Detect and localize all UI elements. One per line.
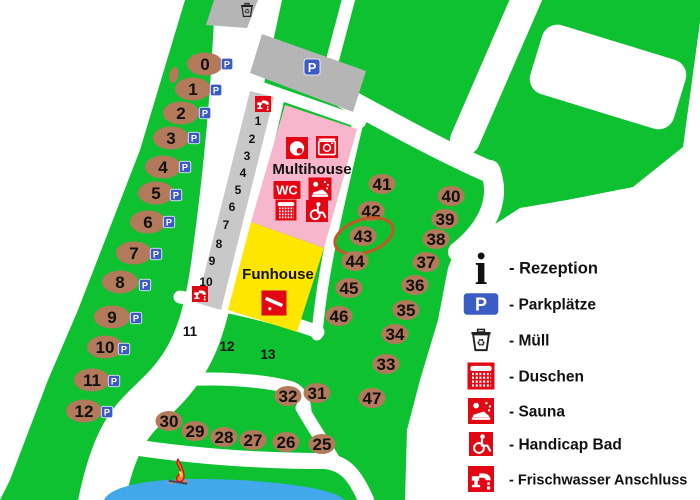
svg-text:47: 47 <box>363 389 382 408</box>
svg-text:1: 1 <box>188 80 197 99</box>
shower-icon <box>468 363 495 390</box>
svg-text:40: 40 <box>442 187 461 206</box>
parking-icon: P <box>221 58 233 70</box>
pitch-25: 25 <box>309 434 336 454</box>
pitch-36: 36 <box>402 275 429 295</box>
trash-icon <box>241 3 253 16</box>
svg-text:0: 0 <box>200 55 209 74</box>
svg-text:33: 33 <box>377 355 396 374</box>
lane-number-6: 6 <box>229 200 236 214</box>
wc-icon: WC <box>274 181 301 199</box>
lane-number-7: 7 <box>223 218 230 232</box>
sauna-icon <box>468 398 494 424</box>
svg-text:26: 26 <box>277 433 296 452</box>
funhouse-label: Funhouse <box>242 266 314 283</box>
svg-text:41: 41 <box>373 175 392 194</box>
svg-text:P: P <box>166 217 172 227</box>
svg-text:37: 37 <box>417 253 436 272</box>
pitch-30: 30 <box>156 411 183 431</box>
parking-icon: P <box>150 248 162 260</box>
pitch-37: 37 <box>413 252 440 272</box>
legend-label: - Parkplätze <box>509 297 596 314</box>
handicap-icon <box>469 432 493 456</box>
svg-text:29: 29 <box>186 422 205 441</box>
svg-text:32: 32 <box>279 387 298 406</box>
shower-icon <box>276 200 297 221</box>
svg-text:9: 9 <box>107 308 116 327</box>
lane-number-2: 2 <box>249 132 256 146</box>
svg-text:7: 7 <box>129 244 138 263</box>
pitch-33: 33 <box>373 354 400 374</box>
area-label-13: 13 <box>260 347 276 362</box>
pitch-28: 28 <box>211 427 238 447</box>
svg-text:38: 38 <box>427 230 446 249</box>
svg-text:11: 11 <box>83 371 101 390</box>
terrain <box>0 0 700 500</box>
faucet-icon <box>255 96 271 112</box>
pitch-39: 39 <box>432 209 459 229</box>
pitch-26: 26 <box>273 432 300 452</box>
lane-number-10: 10 <box>199 275 213 289</box>
pitch-32: 32 <box>275 386 302 406</box>
faucet-icon <box>468 466 494 492</box>
svg-text:12: 12 <box>75 402 94 421</box>
washer-dryer-icon <box>316 136 338 158</box>
svg-text:36: 36 <box>406 276 425 295</box>
svg-text:35: 35 <box>397 301 416 320</box>
svg-text:28: 28 <box>215 428 234 447</box>
svg-text:27: 27 <box>244 431 263 450</box>
svg-text:45: 45 <box>340 279 359 298</box>
lane-number-9: 9 <box>209 254 216 268</box>
parking-icon: P <box>170 189 182 201</box>
svg-text:5: 5 <box>151 184 160 203</box>
sauna-icon <box>309 178 332 201</box>
area-label-11: 11 <box>183 324 198 339</box>
multihouse-label: Multihouse <box>272 161 351 178</box>
svg-text:WC: WC <box>276 183 298 198</box>
pitch-27: 27 <box>240 430 267 450</box>
svg-text:31: 31 <box>308 384 327 403</box>
svg-text:P: P <box>213 85 219 95</box>
svg-text:39: 39 <box>436 210 455 229</box>
svg-text:P: P <box>182 162 188 172</box>
svg-text:34: 34 <box>386 325 405 344</box>
svg-text:P: P <box>104 407 110 417</box>
lane-number-1: 1 <box>255 114 262 128</box>
svg-text:43: 43 <box>354 227 373 246</box>
svg-text:P: P <box>224 59 230 69</box>
pitch-46: 46 <box>326 306 353 326</box>
svg-text:P: P <box>173 190 179 200</box>
svg-text:6: 6 <box>143 213 152 232</box>
handicap-icon <box>306 200 328 222</box>
svg-text:P: P <box>475 295 487 315</box>
legend-label: - Rezeption <box>509 260 598 278</box>
svg-text:4: 4 <box>158 158 168 177</box>
lane-number-4: 4 <box>240 166 247 180</box>
svg-text:P: P <box>111 376 117 386</box>
parking-icon: P <box>210 84 222 96</box>
legend-item: P- Parkplätze <box>463 293 596 316</box>
svg-text:P: P <box>308 60 317 75</box>
pitch-29: 29 <box>182 421 209 441</box>
svg-text:8: 8 <box>115 273 124 292</box>
pitch-35: 35 <box>393 300 420 320</box>
svg-text:44: 44 <box>346 252 365 271</box>
legend-label: - Frischwasser Anschluss <box>509 473 687 489</box>
parking-icon: P <box>108 375 120 387</box>
parking-icon: P <box>101 406 113 418</box>
parking-lot-icon: P <box>304 59 320 75</box>
area-label-12: 12 <box>219 339 234 354</box>
lane-number-8: 8 <box>216 237 223 251</box>
parking-icon: P <box>463 293 499 316</box>
lane-number-5: 5 <box>235 183 242 197</box>
svg-text:P: P <box>142 280 148 290</box>
parking-icon: P <box>118 343 130 355</box>
legend-item: - Handicap Bad <box>469 432 622 456</box>
parking-icon: P <box>130 312 142 324</box>
pitch-44: 44 <box>342 251 369 271</box>
legend-item: - Müll <box>471 329 549 350</box>
lane-number-3: 3 <box>244 149 251 163</box>
pitch-45: 45 <box>336 278 363 298</box>
svg-text:25: 25 <box>313 435 332 454</box>
svg-text:P: P <box>153 249 159 259</box>
svg-text:P: P <box>191 133 197 143</box>
svg-text:P: P <box>121 344 127 354</box>
legend-label: - Sauna <box>509 404 565 421</box>
pitch-41: 41 <box>369 174 396 194</box>
svg-text:46: 46 <box>330 307 349 326</box>
parking-icon: P <box>179 161 191 173</box>
parking-icon: P <box>139 279 151 291</box>
svg-text:P: P <box>133 313 139 323</box>
legend-label: - Müll <box>509 333 549 350</box>
legend-label: - Duschen <box>509 369 584 386</box>
campground-map: ♻ <box>0 0 700 500</box>
svg-text:P: P <box>202 108 208 118</box>
svg-text:10: 10 <box>96 338 115 357</box>
pitch-40: 40 <box>438 186 465 206</box>
slide-icon <box>262 291 287 316</box>
legend-label: - Handicap Bad <box>509 437 622 454</box>
svg-text:30: 30 <box>160 412 179 431</box>
washing-machine-icon <box>286 137 308 159</box>
parking-icon: P <box>163 216 175 228</box>
parking-icon: P <box>199 107 211 119</box>
info-icon: i <box>475 243 488 294</box>
pitch-38: 38 <box>423 229 450 249</box>
trash-icon <box>471 329 490 350</box>
svg-text:3: 3 <box>166 129 175 148</box>
svg-text:2: 2 <box>176 104 185 123</box>
pitch-31: 31 <box>304 383 331 403</box>
parking-icon: P <box>188 132 200 144</box>
pitch-34: 34 <box>382 324 409 344</box>
pitch-47: 47 <box>359 388 386 408</box>
